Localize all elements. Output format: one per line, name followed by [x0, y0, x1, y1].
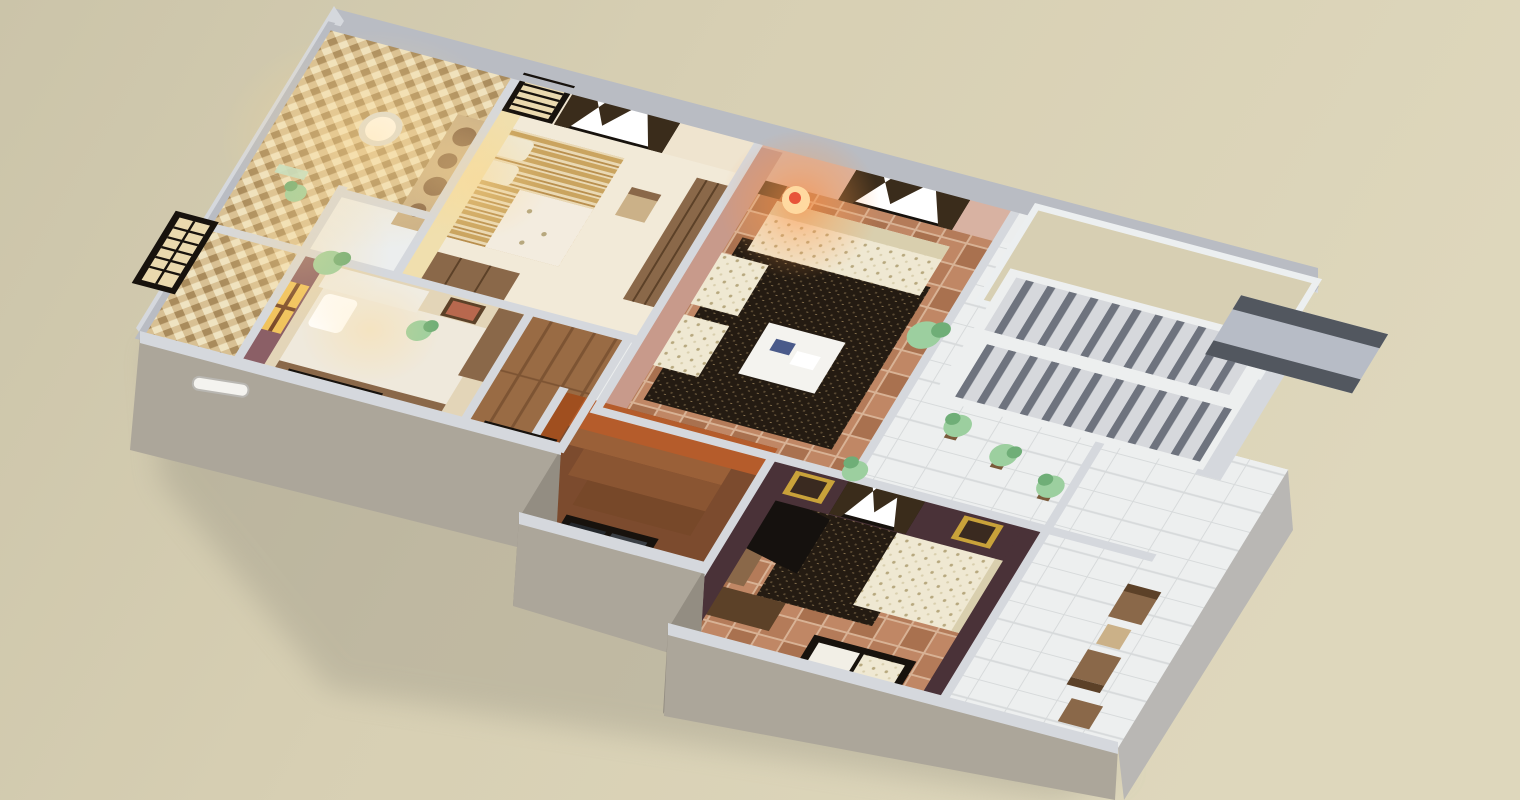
floorplan-3d-render	[0, 0, 1520, 800]
bed-headboard-glow	[410, 120, 550, 240]
living-lamp-flame-core	[789, 192, 801, 204]
front-window-glow	[300, 275, 440, 385]
render-canvas	[0, 0, 1520, 800]
